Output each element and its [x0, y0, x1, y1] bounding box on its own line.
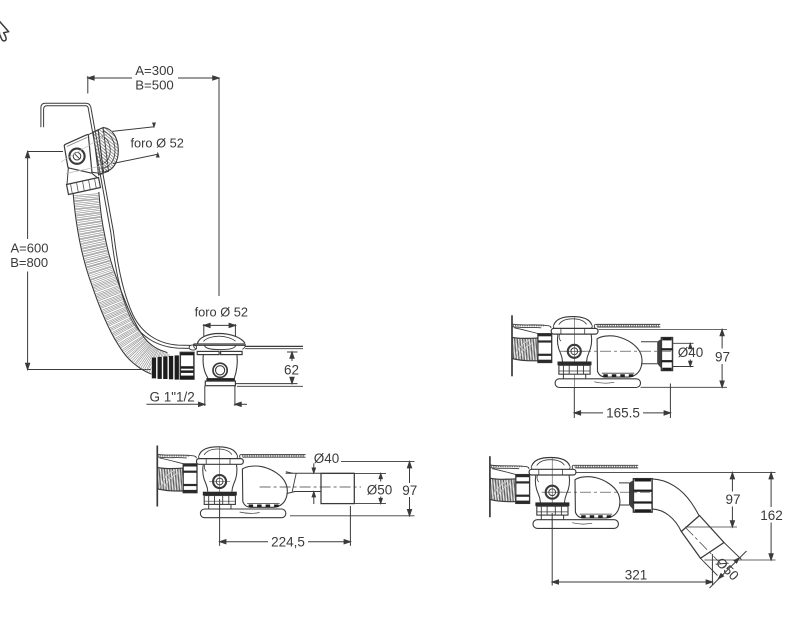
svg-text:Ø50: Ø50 [367, 482, 393, 497]
svg-text:A=300: A=300 [135, 63, 174, 78]
svg-text:B=500: B=500 [135, 77, 174, 92]
svg-text:G 1"1/2: G 1"1/2 [150, 390, 195, 405]
svg-text:foro Ø 52: foro Ø 52 [131, 135, 184, 150]
svg-text:97: 97 [402, 483, 417, 498]
svg-text:A=600: A=600 [11, 241, 49, 256]
svg-text:Ø40: Ø40 [314, 451, 340, 466]
svg-text:B=800: B=800 [10, 255, 48, 270]
svg-text:165.5: 165.5 [606, 405, 640, 420]
svg-text:321: 321 [625, 567, 648, 582]
svg-text:62: 62 [284, 363, 299, 378]
svg-text:foro Ø 52: foro Ø 52 [195, 304, 248, 319]
svg-text:97: 97 [715, 349, 730, 364]
svg-text:224,5: 224,5 [271, 534, 305, 549]
svg-text:162: 162 [760, 508, 783, 523]
svg-text:97: 97 [725, 492, 740, 507]
svg-text:Ø40: Ø40 [678, 345, 704, 360]
